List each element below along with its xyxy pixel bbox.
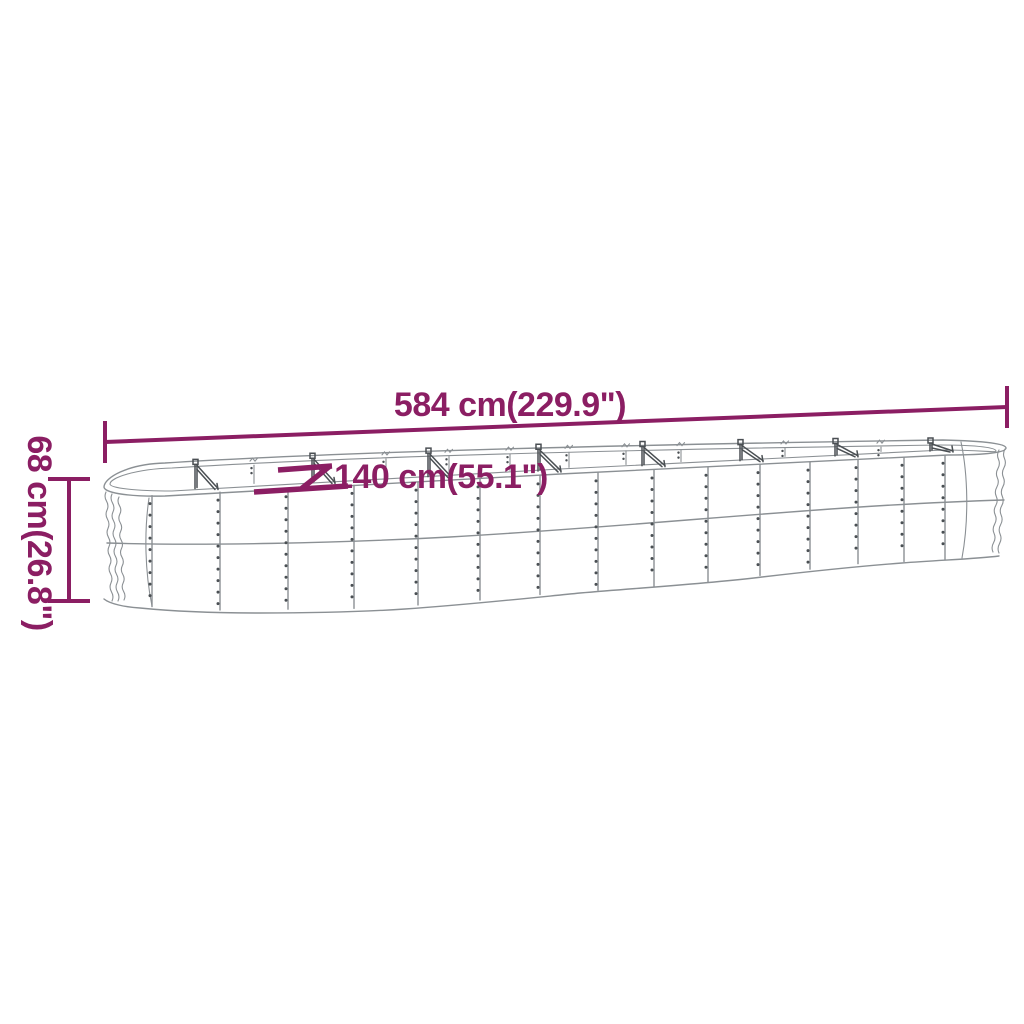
height-dimension: 68 cm(26.8") <box>20 435 90 630</box>
height-dimension-label: 68 cm(26.8") <box>20 435 58 630</box>
planter-drawing <box>104 438 1006 613</box>
dimension-diagram-canvas: 584 cm(229.9") 140 cm(55.1") 68 cm(26.8"… <box>0 0 1024 1024</box>
width-dimension-label: 140 cm(55.1") <box>334 458 548 496</box>
length-dimension-label: 584 cm(229.9") <box>394 386 626 424</box>
